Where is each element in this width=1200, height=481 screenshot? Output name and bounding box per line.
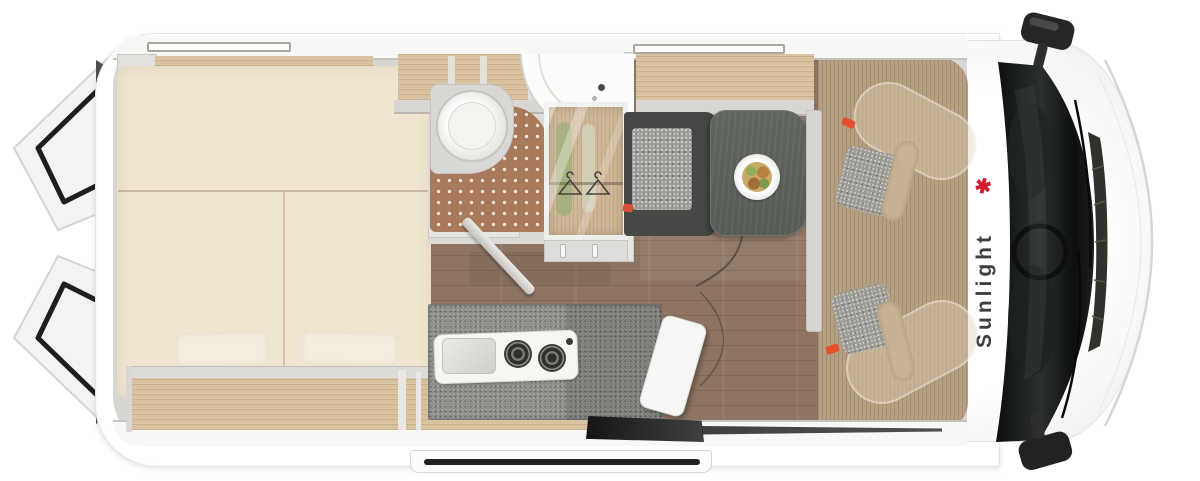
food [742,162,772,192]
wardrobe-hook [592,244,598,258]
faucet-icon [598,84,605,91]
wardrobe-base [544,240,628,262]
camper-floorplan-stage: ✱ Sunlight [0,0,1200,481]
toilet-lid [448,102,496,150]
hob-knob [566,338,573,345]
wardrobe-hook [560,244,566,258]
sliding-door-seal [424,459,700,465]
window-strip-dinette [633,44,785,54]
kitchen-sink [442,338,496,374]
van-cab-body [940,40,1152,442]
hob-burner [538,344,566,372]
cab-partition [806,110,822,332]
lower-shelf-divider [398,370,406,430]
lower-shelf-cap [126,366,132,432]
wardrobe-glass-front [544,102,628,240]
hob-burner [504,340,532,368]
floor-plank-highlight [640,236,810,280]
seatbelt-buckle [622,203,633,212]
lower-shelf-divider [416,372,421,430]
window-strip-rear [147,42,291,52]
pillow [176,331,269,367]
drain-icon [592,96,597,101]
mattress-seam-horizontal [118,190,430,192]
pillow [301,331,399,366]
brand-logo-text: Sunlight [973,188,997,348]
bench-seat-cushion [632,128,692,210]
overhead-shelf-dinette [636,54,814,102]
